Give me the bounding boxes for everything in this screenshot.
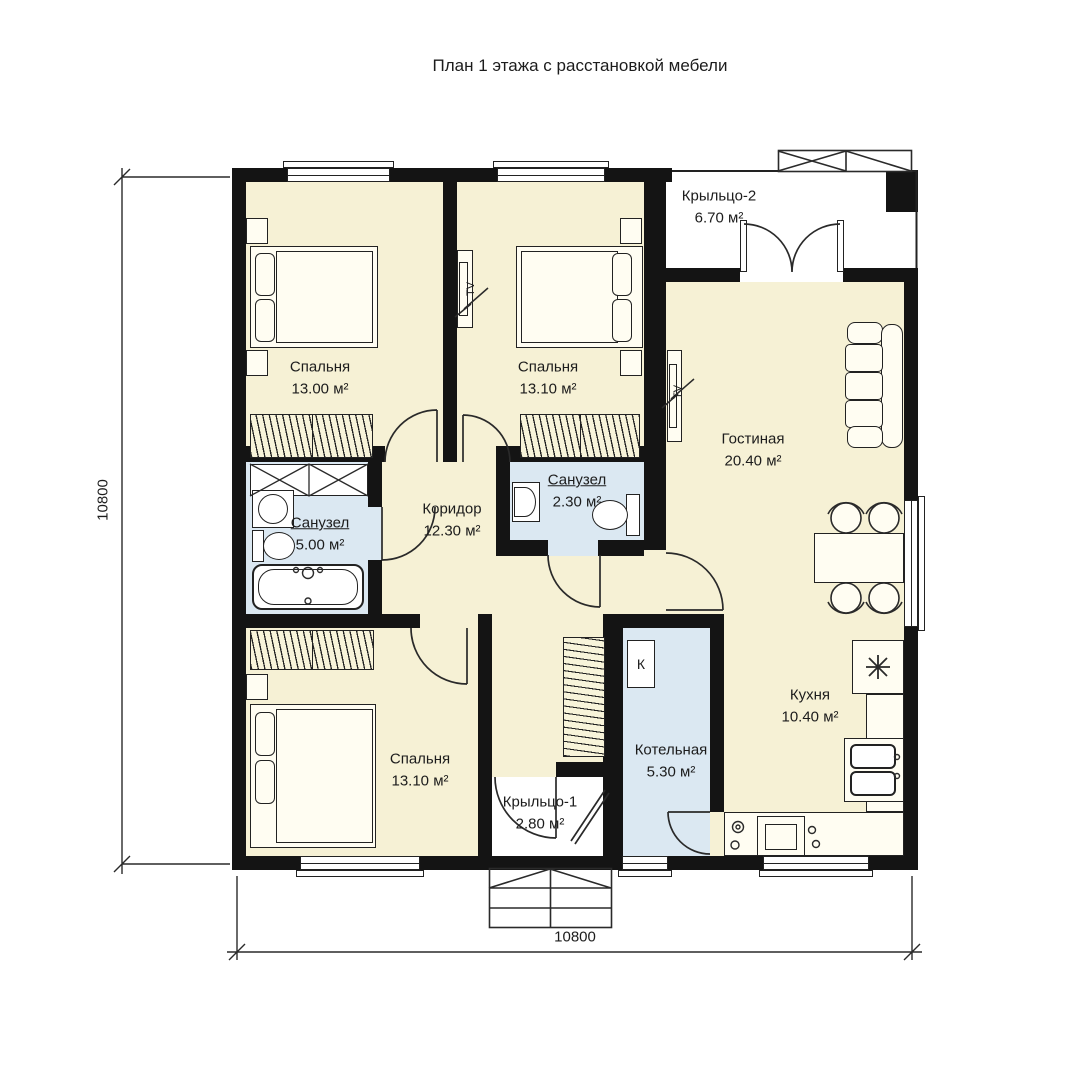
toilet-tank [626,494,640,536]
label-porch1: Крыльцо-1 2.80 м² [503,791,578,835]
wardrobe-bedroom2 [520,414,640,458]
dimension-bottom [227,876,922,960]
bed-mattress [276,709,373,843]
wall-porch2-left [666,268,740,282]
nightstand [246,674,268,700]
label-bedroom1: Спальня 13.00 м² [290,356,350,400]
page-title: План 1 этажа с расстановкой мебели [433,56,728,76]
pillow [255,253,275,296]
wall-left [232,168,246,870]
label-living: Гостиная 20.40 м² [722,428,785,472]
hall-closet [563,637,605,757]
window-sill [296,870,424,877]
window-living [904,500,918,627]
wall-boiler-east [710,628,724,812]
label-bedroom2: Спальня 13.10 м² [518,356,578,400]
wall-ne-corner [886,170,918,212]
room-area: 20.40 м² [722,450,785,472]
window-sill [618,870,672,877]
room-area: 5.00 м² [291,534,349,556]
room-area: 12.30 м² [422,520,481,542]
wall-bedroom3-east [478,614,492,856]
room-name: Санузел [291,512,349,534]
nightstand [620,350,642,376]
room-area: 6.70 м² [682,207,757,229]
sink-bowl [258,494,288,524]
dimension-value-left: 10800 [95,479,112,521]
label-bedroom3: Спальня 13.10 м² [390,748,450,792]
label-kitchen: Кухня 10.40 м² [781,684,838,728]
wall-porch2-right [843,268,918,282]
wall-bath1-east-b [368,560,382,614]
pillow [255,712,275,756]
room-area: 10.40 м² [781,706,838,728]
wall-bedroom3-north-a [246,614,420,628]
room-name: Крыльцо-1 [503,791,578,813]
sofa-cushion [845,372,883,400]
window-sill [283,161,394,168]
window-kitchen [763,856,869,870]
bed-mattress [276,251,373,343]
room-name: Котельная [635,739,708,761]
room-area: 5.30 м² [635,761,708,783]
boiler-unit: К [627,640,655,688]
room-name: Крыльцо-2 [682,185,757,207]
room-name: Гостиная [722,428,785,450]
pillow [255,760,275,804]
pillow [612,299,632,342]
wall-living-west [644,182,666,550]
nightstand [620,218,642,244]
wall-porch1-north [556,762,623,777]
room-area: 2.30 м² [548,491,606,513]
room-name: Коридор [422,498,481,520]
pillow [612,253,632,296]
room-name: Спальня [390,748,450,770]
window-sill [493,161,609,168]
sofa-armrest [847,322,883,344]
kitchen-counter-south [724,812,904,856]
steps-porch1 [489,868,612,928]
fridge [852,640,904,694]
sink-bowl [514,487,536,517]
stove-oven-door [765,824,797,850]
label-corridor: Коридор 12.30 м² [422,498,481,542]
tv-label-bedroom2: TV [465,282,477,296]
room-name: Спальня [290,356,350,378]
window-bedroom3 [300,856,420,870]
sofa-cushion [845,344,883,372]
dining-table [814,533,904,583]
window-bedroom2 [497,168,605,182]
wardrobe-bedroom1 [250,414,373,458]
room-area: 13.10 м² [390,770,450,792]
sofa-armrest [847,426,883,448]
steps-porch2 [778,150,912,172]
sink-basin [850,771,896,796]
window-sill [759,870,873,877]
room-name: Санузел [548,469,606,491]
wardrobe-divider [312,415,313,457]
room-area: 2.80 м² [503,813,578,835]
bed-mattress [521,251,618,343]
wall-bath1-east-a [368,462,382,507]
window-bedroom1 [287,168,390,182]
wardrobe-bedroom3 [250,630,374,670]
label-bath1: Санузел 5.00 м² [291,512,349,556]
dimension-left [114,168,230,874]
sink-basin [850,744,896,769]
wall-bath2-south-b [598,540,644,556]
dimension-value-bottom: 10800 [554,929,596,946]
label-boiler: Котельная 5.30 м² [635,739,708,783]
nightstand [246,218,268,244]
bathtub-inner [258,569,358,605]
tv-label-living: TV [672,385,684,399]
sofa-back [881,324,903,448]
wall-boiler-west [603,614,623,856]
floor-plan-page: План 1 этажа с расстановкой мебели [0,0,1080,1080]
room-area: 13.10 м² [518,378,578,400]
boiler-unit-label: К [637,656,645,672]
room-name: Кухня [781,684,838,706]
wardrobe-divider [580,415,581,457]
room-area: 13.00 м² [290,378,350,400]
french-door-leaf [837,220,844,272]
wall-between-bedrooms [443,182,457,462]
pillow [255,299,275,342]
wardrobe-divider [312,631,313,669]
label-bath2: Санузел 2.30 м² [548,469,606,513]
sofa-cushion [845,400,883,428]
wall-bath2-south-a [496,540,548,556]
nightstand [246,350,268,376]
window-sill [918,496,925,631]
room-name: Спальня [518,356,578,378]
label-porch2: Крыльцо-2 6.70 м² [682,185,757,229]
window-boiler [622,856,668,870]
